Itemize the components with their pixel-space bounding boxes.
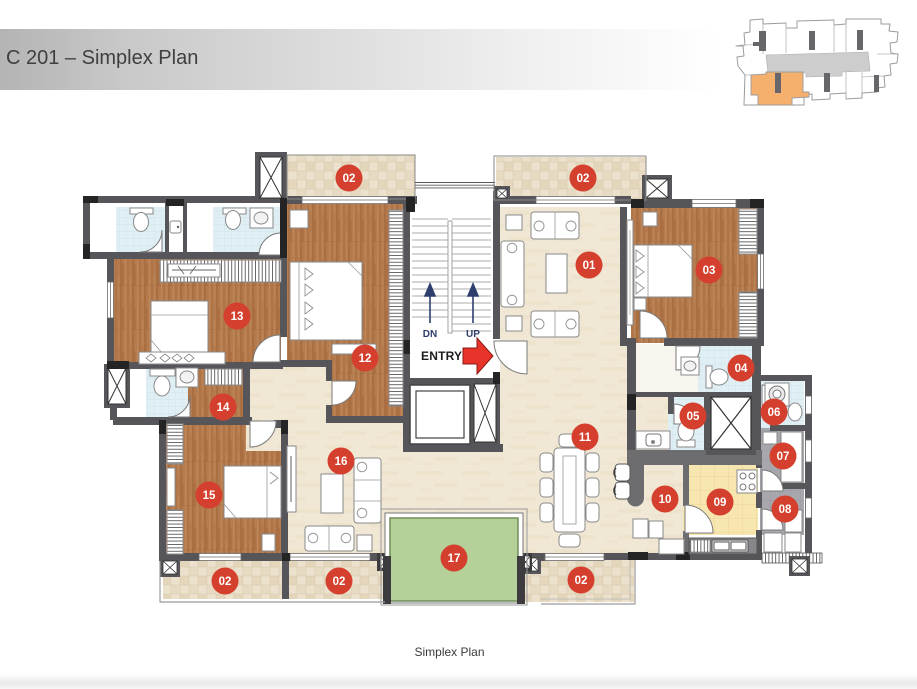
svg-text:01: 01 xyxy=(583,260,596,272)
svg-text:05: 05 xyxy=(687,411,700,423)
svg-text:04: 04 xyxy=(735,363,748,375)
svg-text:ENTRY: ENTRY xyxy=(421,349,462,363)
svg-text:02: 02 xyxy=(219,576,232,588)
svg-text:02: 02 xyxy=(343,173,356,185)
svg-text:08: 08 xyxy=(779,504,792,516)
svg-text:07: 07 xyxy=(777,451,790,463)
svg-text:02: 02 xyxy=(333,576,346,588)
svg-text:11: 11 xyxy=(579,432,592,444)
svg-text:09: 09 xyxy=(714,497,727,509)
svg-text:06: 06 xyxy=(768,407,781,419)
svg-text:02: 02 xyxy=(575,575,588,587)
svg-text:02: 02 xyxy=(577,173,590,185)
svg-text:DN: DN xyxy=(423,329,437,340)
svg-text:14: 14 xyxy=(217,402,230,414)
svg-text:UP: UP xyxy=(466,329,480,340)
svg-text:17: 17 xyxy=(448,553,461,565)
svg-text:10: 10 xyxy=(659,494,672,506)
svg-text:13: 13 xyxy=(231,311,244,323)
svg-text:15: 15 xyxy=(203,490,216,502)
svg-text:16: 16 xyxy=(335,456,348,468)
svg-text:03: 03 xyxy=(703,265,716,277)
svg-text:12: 12 xyxy=(359,353,372,365)
